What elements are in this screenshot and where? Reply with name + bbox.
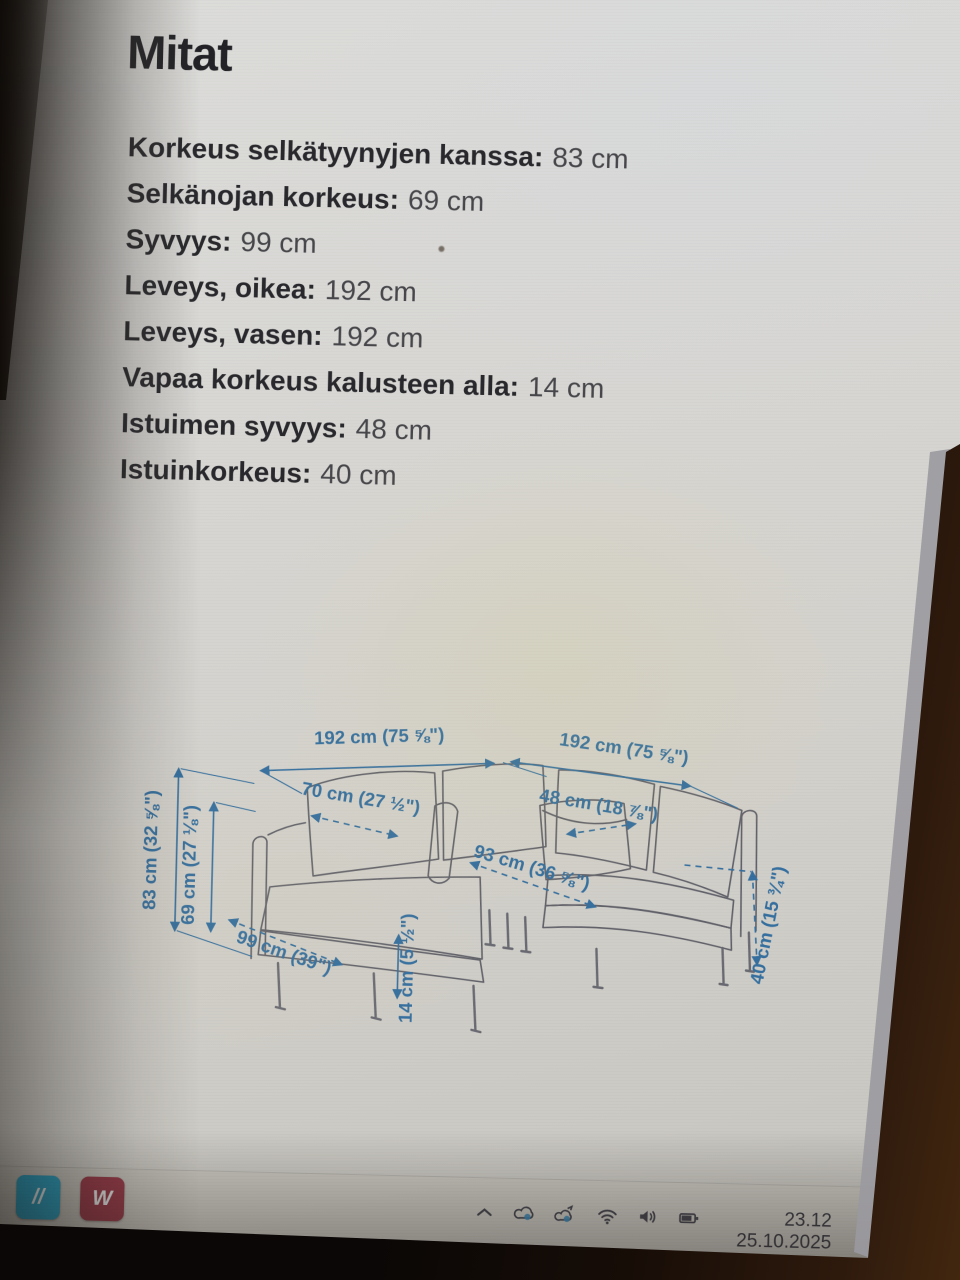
photo-of-screen: Mitat Korkeus selkätyynyjen kanssa:83 cm… — [0, 0, 960, 1280]
spec-label: Leveys, oikea: — [124, 269, 316, 305]
spec-value: 40 cm — [320, 458, 397, 491]
clock-date: 25.10.2025 — [726, 1230, 832, 1255]
spec-value: 99 cm — [240, 226, 317, 259]
cloud-icon[interactable] — [513, 1201, 539, 1227]
dim-label-width-left: 192 cm (75 ⅝") — [314, 724, 445, 749]
spec-label: Vapaa korkeus kalusteen alla: — [122, 361, 520, 402]
dimension-lines — [173, 754, 762, 1007]
battery-icon[interactable] — [677, 1205, 703, 1231]
dim-label-backrest-height: 69 cm (27 ⅛") — [177, 805, 201, 925]
spec-label: Istuinkorkeus: — [120, 453, 312, 489]
spec-value: 192 cm — [331, 320, 424, 353]
page-content: Mitat Korkeus selkätyynyjen kanssa:83 cm… — [0, 0, 960, 1280]
spec-label: Istuimen syvyys: — [121, 407, 347, 444]
spec-label: Leveys, vasen: — [123, 315, 323, 351]
dimension-spec-list: Korkeus selkätyynyjen kanssa:83 cmSelkän… — [119, 124, 629, 504]
spec-label: Korkeus selkätyynyjen kanssa: — [128, 131, 544, 172]
spec-value: 48 cm — [355, 413, 432, 446]
spec-value: 69 cm — [408, 184, 485, 217]
spec-label: Selkänojan korkeus: — [126, 177, 399, 215]
spec-value: 83 cm — [552, 142, 629, 175]
teal-app-icon[interactable]: // — [16, 1175, 61, 1220]
red-app-icon[interactable]: W — [80, 1176, 125, 1221]
dim-label-seat-width-left: 70 cm (27 ½") — [300, 778, 422, 818]
chevron-up-icon[interactable] — [472, 1200, 498, 1226]
taskbar: //W 23.12 25.10.2025 — [0, 1165, 933, 1280]
dim-label-floor-clearance: 14 cm (5 ½") — [395, 913, 419, 1023]
dust-speck — [438, 246, 444, 252]
dim-label-seat-height: 40 cm (15 ¾") — [746, 864, 790, 986]
clock-time: 23.12 — [727, 1208, 833, 1233]
sofa-dimension-diagram: 192 cm (75 ⅝")192 cm (75 ⅝")83 cm (32 ⅝"… — [123, 703, 822, 1080]
page-title: Mitat — [127, 24, 233, 82]
spec-value: 192 cm — [325, 274, 418, 307]
dim-label-width-right: 192 cm (75 ⅝") — [558, 728, 690, 768]
taskbar-clock[interactable]: 23.12 25.10.2025 — [726, 1208, 832, 1255]
cloud-sync-icon[interactable] — [554, 1202, 580, 1228]
dim-label-height-back-cushions: 83 cm (32 ⅝") — [138, 790, 162, 910]
spec-value: 14 cm — [528, 371, 605, 404]
spec-label: Syvyys: — [125, 223, 232, 257]
volume-icon[interactable] — [636, 1204, 662, 1230]
wifi-icon[interactable] — [595, 1203, 621, 1229]
